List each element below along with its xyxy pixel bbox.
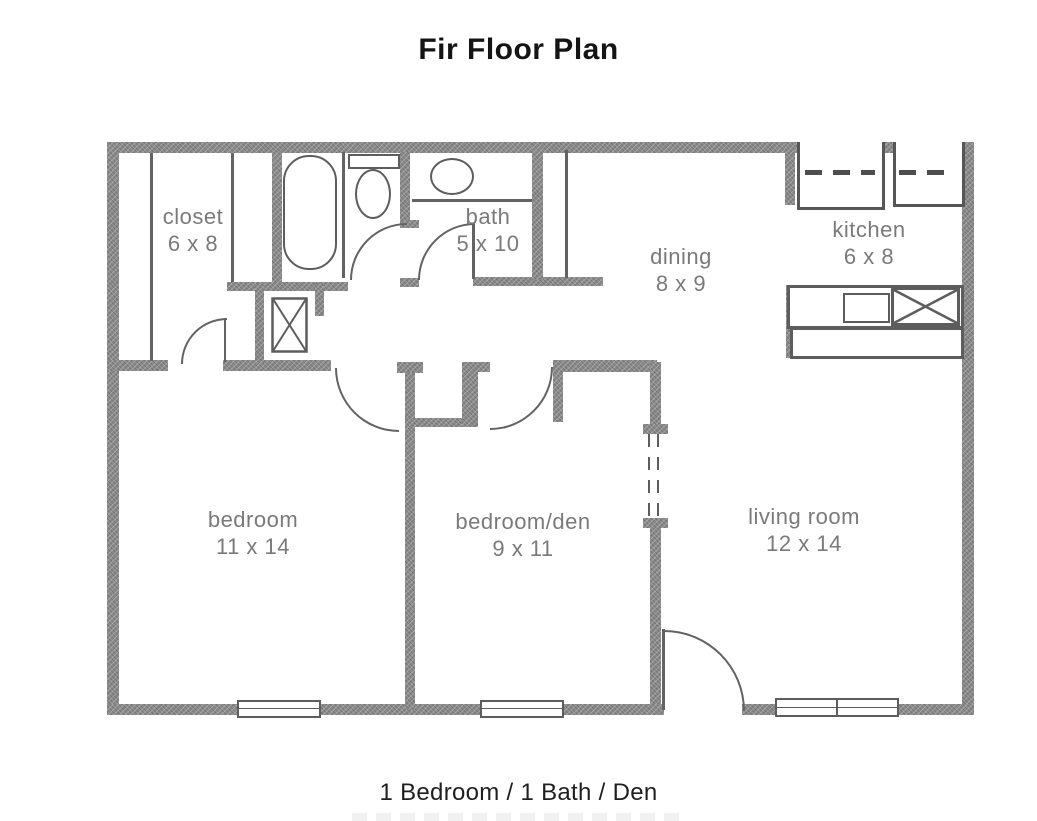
bifold-door-opening <box>648 434 650 518</box>
wall-bedroom-divider <box>405 362 415 710</box>
room-label-dining: dining 8 x 9 <box>650 243 712 297</box>
bifold-cap-top <box>643 424 668 434</box>
room-name: bath <box>457 203 520 230</box>
door-leaf <box>224 318 226 362</box>
wall-living-divider-upper <box>650 362 661 432</box>
wall-hall-left <box>107 360 168 371</box>
door-swing <box>350 223 407 280</box>
wall-den-door-stub <box>553 372 563 422</box>
window <box>480 700 564 718</box>
room-name: dining <box>650 243 712 270</box>
kitchen-sink-x-icon <box>891 287 960 326</box>
cropped-text-remnant <box>352 813 688 821</box>
wall-hall-mid <box>223 360 331 371</box>
upper-cabinet-icon <box>797 142 885 210</box>
wall-divider-cap <box>397 362 423 373</box>
bifold-cap-bottom <box>643 518 668 528</box>
water-heater-x-icon <box>271 297 308 353</box>
room-dims: 9 x 11 <box>455 535 590 562</box>
sink-icon <box>430 158 474 195</box>
wall-tub-left <box>272 152 282 283</box>
room-name: kitchen <box>832 216 905 243</box>
bifold-door-opening <box>657 434 659 518</box>
room-dims: 8 x 9 <box>650 270 712 297</box>
door-swing <box>490 367 553 430</box>
wall-den-top <box>553 360 657 372</box>
room-label-bath: bath 5 x 10 <box>457 203 520 257</box>
door-swing <box>181 318 227 364</box>
room-name: bedroom <box>208 506 298 533</box>
wall-hall-under-tub <box>227 282 348 291</box>
room-name: living room <box>748 503 860 530</box>
bathtub-icon <box>283 155 337 270</box>
wall-outer-right <box>962 142 974 714</box>
wall-toilet-right <box>400 152 410 222</box>
cabinet-dashed-line <box>805 170 875 175</box>
wall-tub-right <box>342 152 345 278</box>
kitchen-bar-counter <box>790 327 964 359</box>
plan-caption: 1 Bedroom / 1 Bath / Den <box>379 779 657 807</box>
window <box>237 700 321 718</box>
room-dims: 11 x 14 <box>208 533 298 560</box>
room-label-bedroom-den: bedroom/den 9 x 11 <box>455 508 590 562</box>
wall-nook-cap <box>462 362 490 372</box>
room-label-living-room: living room 12 x 14 <box>748 503 860 557</box>
room-dims: 6 x 8 <box>832 243 905 270</box>
range-icon <box>843 293 890 323</box>
window <box>775 698 899 717</box>
wall-chase <box>565 150 568 278</box>
window-mullion <box>836 700 838 715</box>
room-name: bedroom/den <box>455 508 590 535</box>
room-dims: 12 x 14 <box>748 530 860 557</box>
wall-living-divider-lower <box>650 528 661 704</box>
wall-utility-left <box>255 283 264 363</box>
wall-outer-left <box>107 142 119 714</box>
wall-utility-stub <box>315 283 324 316</box>
wall-bath-right <box>532 142 543 280</box>
vanity-counter <box>412 199 532 202</box>
floor-plan: closet 6 x 8 bath 5 x 10 dining 8 x 9 ki… <box>0 0 1037 821</box>
closet-partition-right <box>231 153 234 283</box>
closet-partition-left <box>150 153 153 361</box>
toilet-tank-icon <box>348 154 400 169</box>
room-dims: 6 x 8 <box>163 230 223 257</box>
room-label-closet: closet 6 x 8 <box>163 203 223 257</box>
toilet-bowl-icon <box>355 169 391 219</box>
wall-kitchen-left-stub <box>785 142 795 205</box>
cabinet-dashed-line <box>899 170 955 175</box>
room-label-kitchen: kitchen 6 x 8 <box>832 216 905 270</box>
room-label-bedroom: bedroom 11 x 14 <box>208 506 298 560</box>
room-name: closet <box>163 203 223 230</box>
entry-door-swing <box>664 630 745 711</box>
room-dims: 5 x 10 <box>457 230 520 257</box>
door-swing <box>335 368 399 432</box>
